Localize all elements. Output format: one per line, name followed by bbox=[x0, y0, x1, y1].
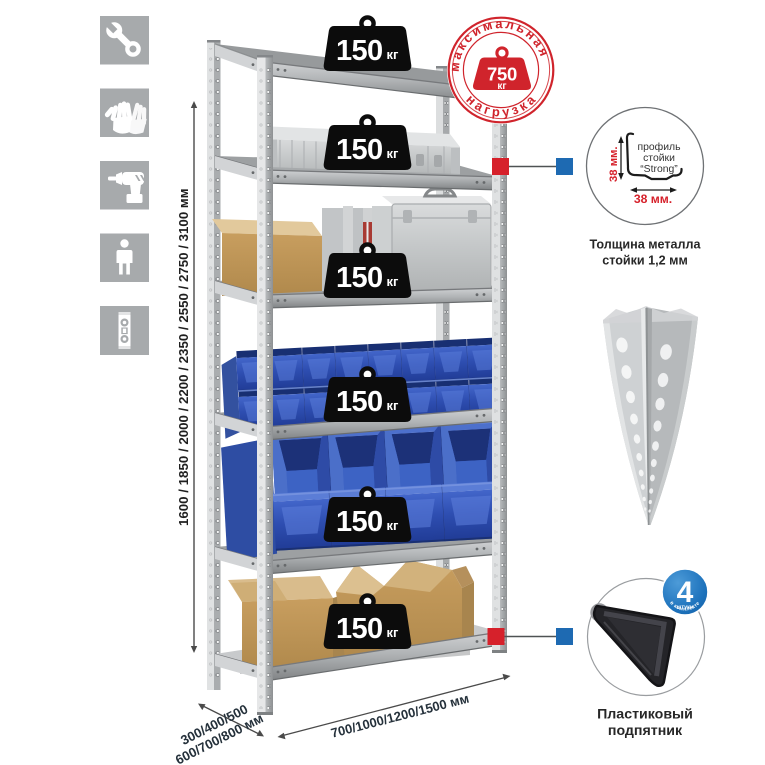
svg-text:38 мм.: 38 мм. bbox=[608, 146, 620, 182]
svg-text:кг: кг bbox=[387, 47, 400, 62]
svg-text:кг: кг bbox=[387, 146, 400, 161]
svg-text:Толщина металла: Толщина металла bbox=[589, 238, 701, 252]
svg-text:38 мм.: 38 мм. bbox=[634, 192, 672, 206]
svg-text:профиль: профиль bbox=[637, 141, 680, 153]
svg-text:кг: кг bbox=[497, 81, 506, 92]
svg-text:150: 150 bbox=[336, 613, 383, 645]
svg-text:кг: кг bbox=[387, 274, 400, 289]
svg-text:150: 150 bbox=[336, 262, 383, 294]
svg-text:150: 150 bbox=[336, 506, 383, 538]
svg-text:кг: кг bbox=[387, 518, 400, 533]
svg-text:стойки 1,2 мм: стойки 1,2 мм bbox=[602, 254, 688, 268]
svg-text:кг: кг bbox=[387, 625, 400, 640]
svg-text:150: 150 bbox=[336, 134, 383, 166]
svg-text:“Strong”: “Strong” bbox=[640, 164, 678, 175]
svg-text:Пластиковый: Пластиковый bbox=[597, 707, 693, 723]
svg-text:150: 150 bbox=[336, 386, 383, 418]
svg-text:кг: кг bbox=[387, 398, 400, 413]
svg-text:стойки: стойки bbox=[643, 153, 675, 164]
svg-text:1600 / 1850 / 2000 / 2200 / 23: 1600 / 1850 / 2000 / 2200 / 2350 / 2550 … bbox=[176, 188, 191, 526]
svg-text:150: 150 bbox=[336, 35, 383, 67]
svg-text:подпятник: подпятник bbox=[608, 723, 683, 739]
